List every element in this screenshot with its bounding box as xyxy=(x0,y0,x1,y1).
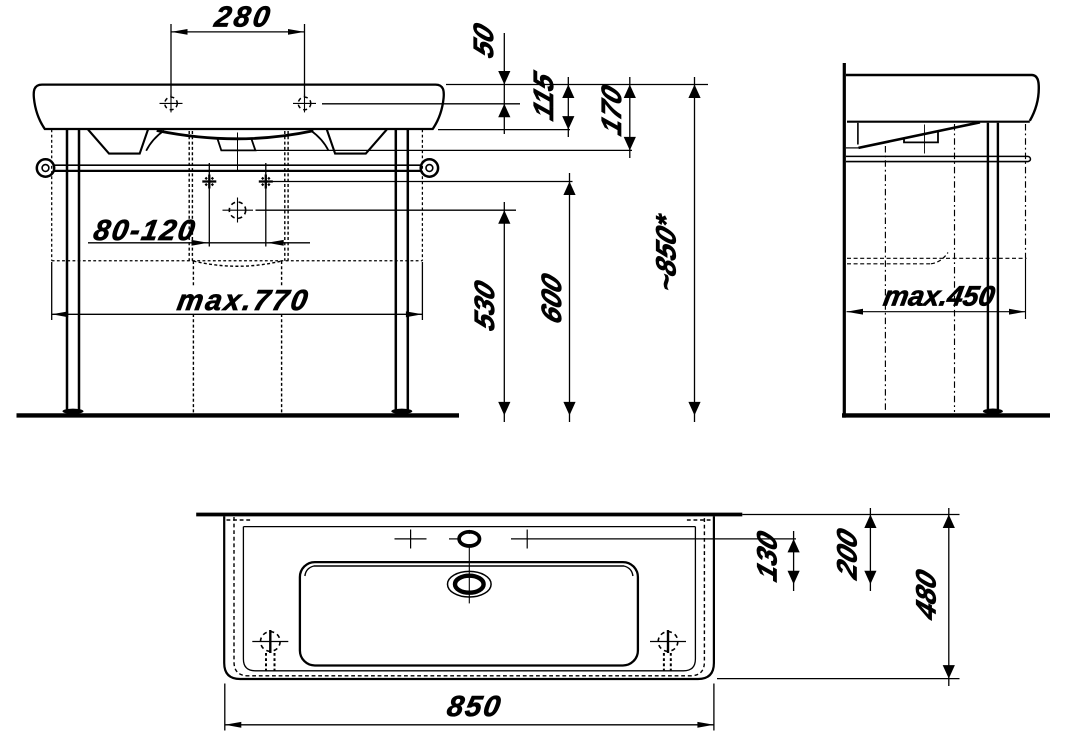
svg-text:~850*: ~850* xyxy=(651,210,682,296)
svg-text:80-120: 80-120 xyxy=(91,215,199,247)
svg-text:280: 280 xyxy=(211,2,275,34)
svg-text:max.450: max.450 xyxy=(881,281,997,312)
svg-text:max.770: max.770 xyxy=(175,285,313,317)
svg-text:850: 850 xyxy=(445,691,505,723)
